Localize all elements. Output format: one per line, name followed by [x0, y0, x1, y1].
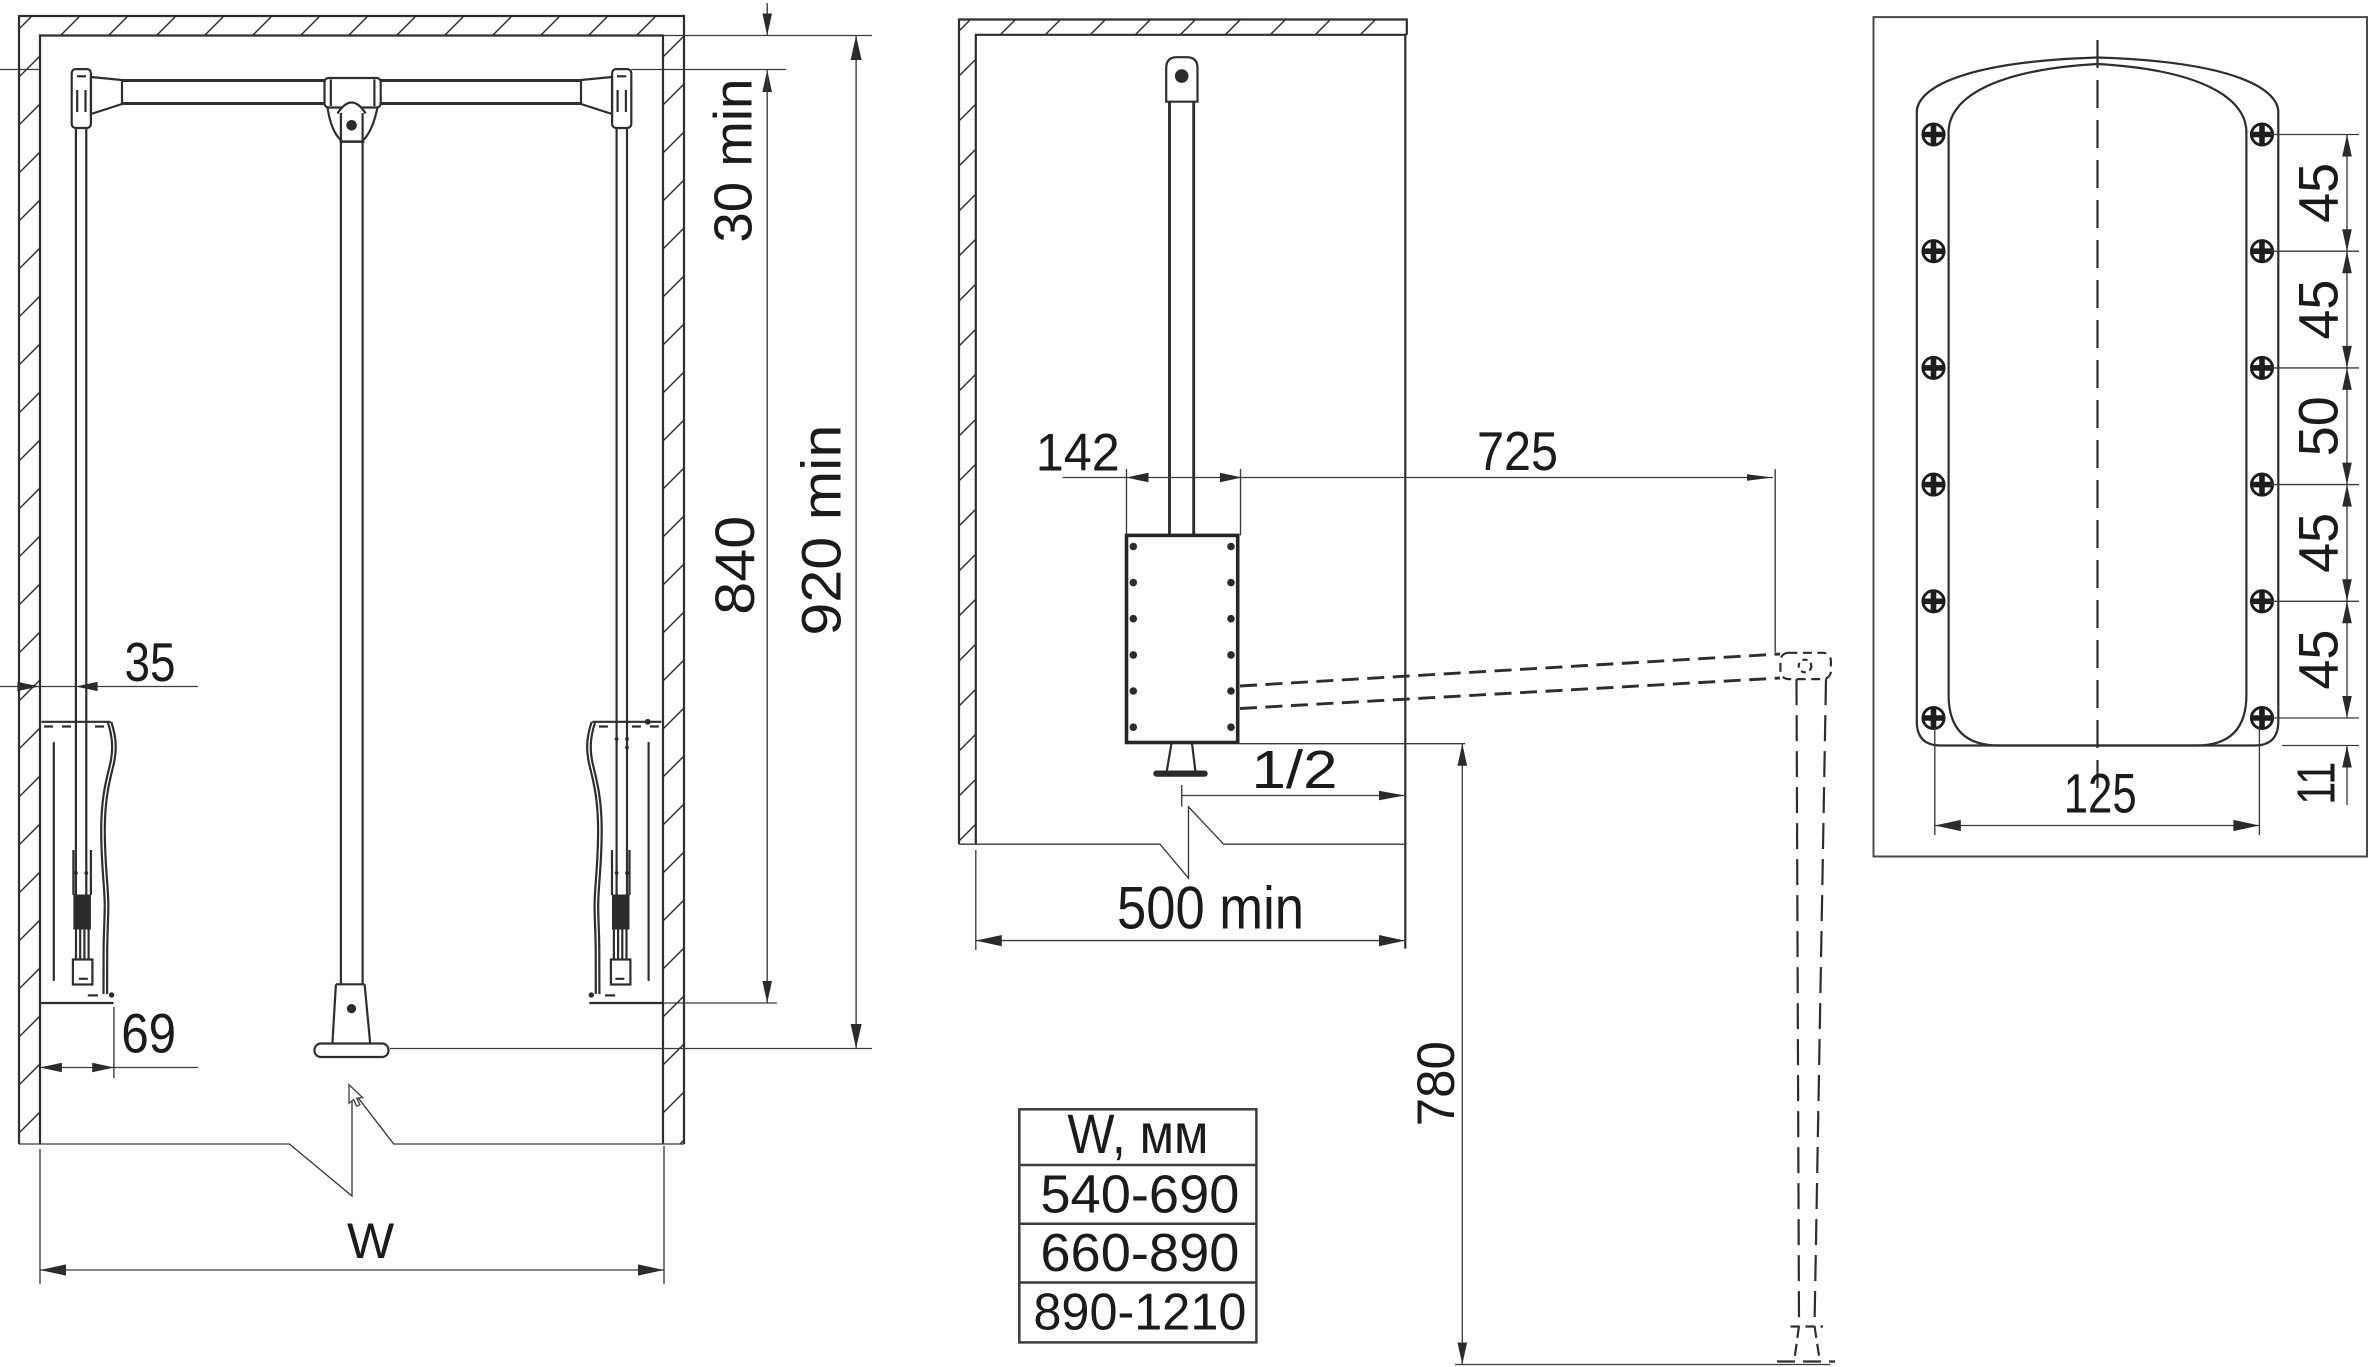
svg-text:125: 125	[2064, 762, 2137, 825]
svg-text:69: 69	[121, 1002, 176, 1065]
svg-text:780: 780	[1407, 1041, 1466, 1126]
svg-text:W: W	[347, 1213, 395, 1269]
svg-text:35: 35	[125, 631, 176, 693]
svg-text:920 min: 920 min	[790, 425, 853, 636]
svg-text:840: 840	[703, 516, 766, 615]
svg-text:30 min: 30 min	[704, 79, 764, 243]
svg-text:50: 50	[2286, 396, 2349, 456]
svg-text:W, мм: W, мм	[1067, 1102, 1208, 1165]
svg-text:500 min: 500 min	[1117, 875, 1304, 942]
svg-text:45: 45	[2286, 163, 2349, 223]
svg-text:45: 45	[2286, 630, 2349, 690]
svg-text:660-890: 660-890	[1040, 1223, 1239, 1283]
svg-text:725: 725	[1477, 420, 1558, 482]
svg-text:11: 11	[2286, 762, 2346, 805]
svg-text:45: 45	[2286, 280, 2349, 340]
svg-text:142: 142	[1036, 424, 1120, 483]
svg-text:540-690: 540-690	[1040, 1164, 1239, 1224]
svg-text:45: 45	[2286, 513, 2349, 573]
svg-text:1/2: 1/2	[1252, 740, 1338, 800]
svg-text:890-1210: 890-1210	[1033, 1283, 1246, 1341]
